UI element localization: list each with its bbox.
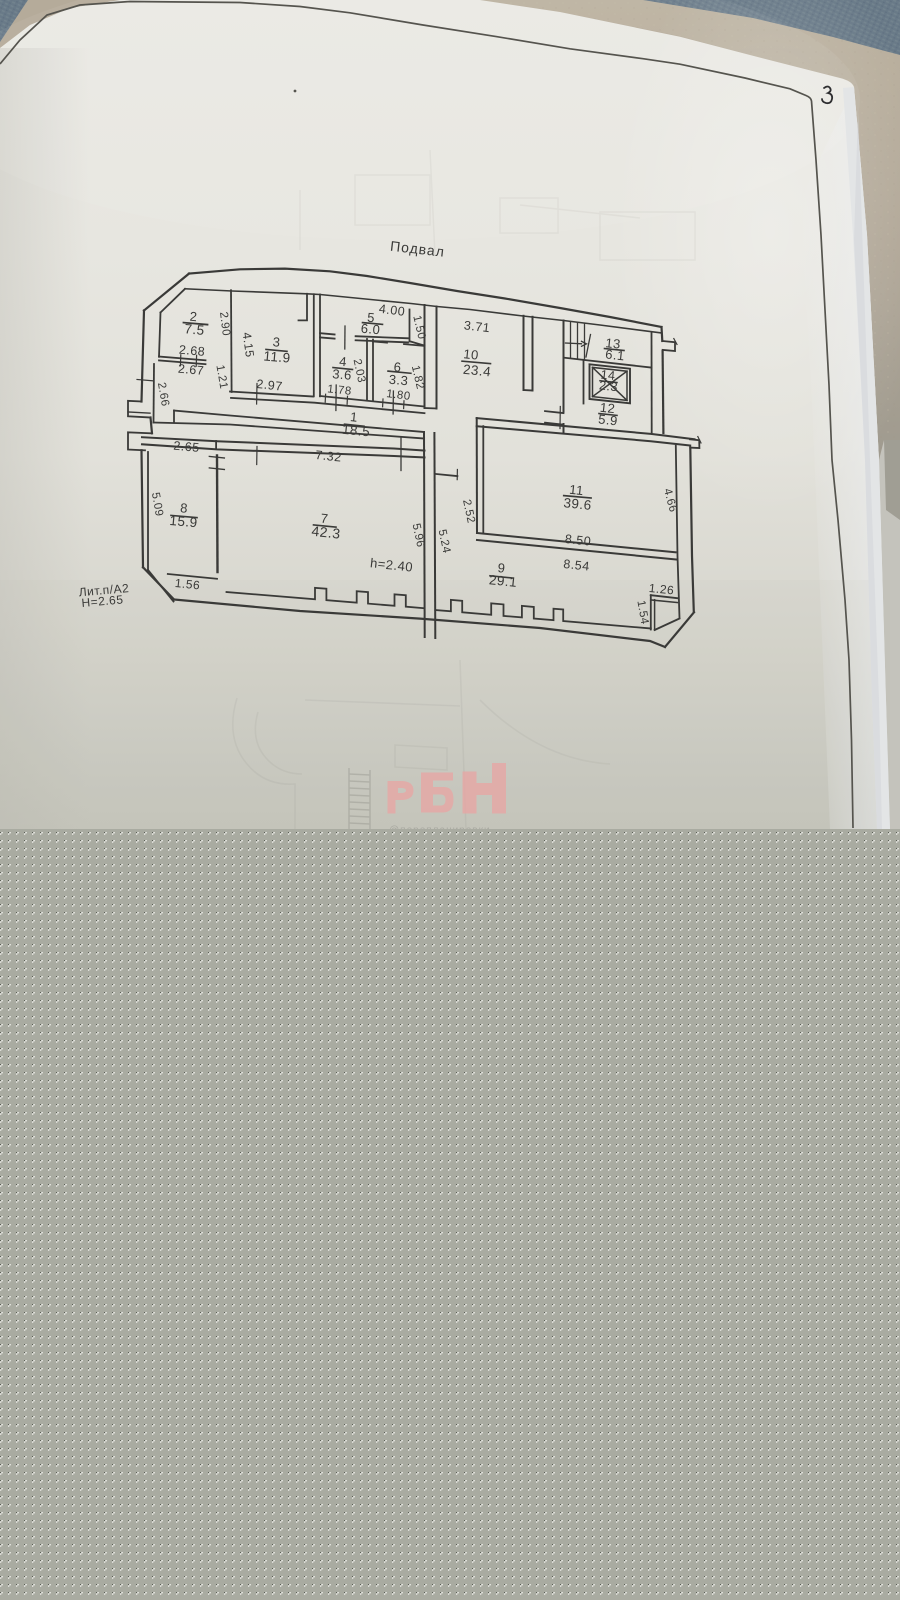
svg-text:10: 10 [463,346,480,363]
svg-text:5.9: 5.9 [598,411,619,428]
svg-text:2.65: 2.65 [173,439,200,455]
svg-text:39.6: 39.6 [563,495,593,513]
svg-text:42.3: 42.3 [311,523,342,542]
svg-text:3.3: 3.3 [388,372,409,389]
svg-text:1.78: 1.78 [327,383,353,397]
svg-text:2.97: 2.97 [256,377,284,394]
svg-text:7.32: 7.32 [315,448,343,465]
svg-text:8.54: 8.54 [563,557,591,574]
svg-text:6.1: 6.1 [605,346,626,363]
svg-text:18.5: 18.5 [341,422,371,440]
svg-text:23.4: 23.4 [462,362,492,380]
svg-text:8.50: 8.50 [564,532,592,549]
svg-text:2.3: 2.3 [598,378,618,394]
svg-text:6.0: 6.0 [360,321,381,338]
svg-text:3: 3 [272,334,281,350]
svg-text:7.5: 7.5 [184,321,206,338]
svg-text:3.71: 3.71 [463,318,491,335]
svg-text:11.9: 11.9 [263,348,291,365]
svg-text:3.6: 3.6 [332,366,353,383]
svg-text:1.26: 1.26 [648,581,675,598]
svg-text:1.56: 1.56 [174,576,201,593]
svg-text:2.67: 2.67 [177,362,204,378]
svg-text:29.1: 29.1 [488,572,518,590]
svg-text:2.68: 2.68 [178,343,205,359]
svg-text:15.9: 15.9 [169,513,198,530]
